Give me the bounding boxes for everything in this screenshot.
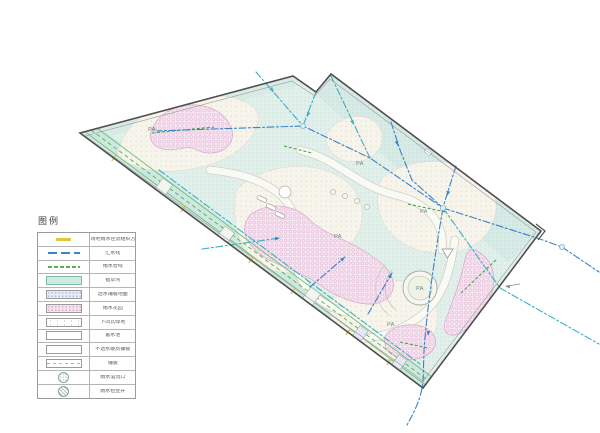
rain-pipe-swatch-icon bbox=[38, 261, 90, 274]
legend-row: 下凹式绿地 bbox=[38, 315, 135, 329]
legend-row: 雨水管线 bbox=[38, 260, 135, 274]
runoff-direction-swatch-icon bbox=[38, 233, 90, 246]
legend-row: 雨水检查井 bbox=[38, 384, 135, 398]
legend-label: 植草沟 bbox=[90, 278, 135, 283]
legend-row: 透水铺装地面 bbox=[38, 287, 135, 301]
legend-label: 透水铺装地面 bbox=[90, 292, 135, 297]
legend-label: 雨水花园 bbox=[90, 306, 135, 311]
landscape-plan-sheet: PA PA PA PA PA PA 图例 场地雨水径流组织方向 汇水线 bbox=[0, 0, 600, 433]
area-label: PA bbox=[148, 127, 156, 133]
legend-label: 铺装 bbox=[90, 361, 135, 366]
legend-row: 汇水线 bbox=[38, 246, 135, 260]
legend-label: 不透水硬质铺装 bbox=[90, 347, 135, 352]
permeable-paving-swatch-icon bbox=[38, 288, 90, 301]
legend-label: 雨水溢流口 bbox=[90, 375, 135, 380]
impervious-paving-swatch-icon bbox=[38, 343, 90, 356]
area-label: PA bbox=[387, 322, 395, 328]
area-label: PA bbox=[334, 234, 342, 240]
legend-row: 雨水花园 bbox=[38, 301, 135, 315]
paving-swatch-icon bbox=[38, 357, 90, 370]
legend: 图例 场地雨水径流组织方向 汇水线 雨水管线 植草沟 透水铺装地面 bbox=[37, 214, 137, 399]
legend-row: 场地雨水径流组织方向 bbox=[38, 233, 135, 246]
site-interior bbox=[80, 74, 541, 388]
legend-row: 蓄水池 bbox=[38, 329, 135, 343]
legend-label: 蓄水池 bbox=[90, 333, 135, 338]
legend-table: 场地雨水径流组织方向 汇水线 雨水管线 植草沟 透水铺装地面 雨水花园 bbox=[37, 232, 136, 399]
legend-label: 汇水线 bbox=[90, 251, 135, 256]
catchment-line-swatch-icon bbox=[38, 247, 90, 260]
storage-tank-swatch-icon bbox=[38, 330, 90, 343]
legend-title: 图例 bbox=[38, 214, 137, 227]
legend-row: 铺装 bbox=[38, 356, 135, 370]
legend-label: 下凹式绿地 bbox=[90, 320, 135, 325]
area-label: PA bbox=[416, 286, 424, 292]
legend-label: 雨水管线 bbox=[90, 264, 135, 269]
area-label: PA bbox=[420, 209, 428, 215]
legend-row: 植草沟 bbox=[38, 273, 135, 287]
sunken-green-swatch-icon bbox=[38, 316, 90, 329]
small-plaza-circle bbox=[279, 186, 291, 198]
overflow-outlet-swatch-icon bbox=[38, 371, 90, 384]
legend-label: 雨水检查井 bbox=[90, 389, 135, 394]
legend-row: 雨水溢流口 bbox=[38, 370, 135, 384]
inspection-well-swatch-icon bbox=[38, 385, 90, 398]
grass-swale-swatch-icon bbox=[38, 274, 90, 287]
legend-label: 场地雨水径流组织方向 bbox=[90, 237, 135, 242]
legend-row: 不透水硬质铺装 bbox=[38, 342, 135, 356]
area-label: PA bbox=[356, 161, 364, 167]
rain-garden-swatch-icon bbox=[38, 302, 90, 315]
